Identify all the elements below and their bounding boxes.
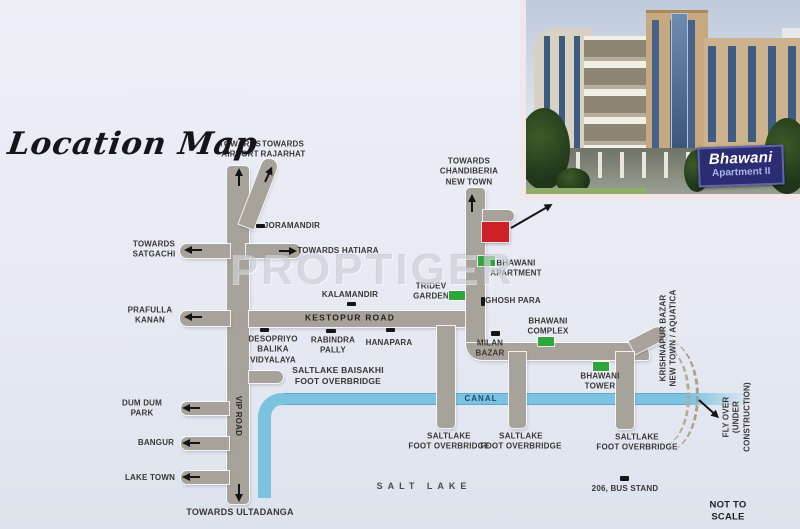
landmark-bhawani-complex bbox=[538, 337, 554, 346]
label-hanapara: HANAPARA bbox=[366, 338, 413, 348]
label-saltlake-overbridge-1: SALTLAKE FOOT OVERBRIDGE bbox=[408, 432, 489, 453]
project-site-marker bbox=[482, 222, 509, 242]
label-vip-road: VIP ROAD bbox=[233, 396, 243, 436]
page-title: Location Map bbox=[5, 126, 260, 162]
label-rabindra-pally: RABINDRA PALLY bbox=[311, 336, 355, 357]
arrow-dumdum-left bbox=[182, 404, 200, 412]
marker-ghosh-para bbox=[481, 297, 485, 306]
arrow-prafulla-left bbox=[184, 313, 202, 321]
label-saltlake-overbridge-2: SALTLAKE FOOT OVERBRIDGE bbox=[480, 432, 561, 453]
label-bhawani-tower: BHAWANI TOWER bbox=[580, 372, 619, 393]
overbridge-road-2 bbox=[509, 352, 526, 428]
label-tridev-garden: TRIDEV GARDEN bbox=[413, 282, 449, 303]
label-bus-stand: 206, BUS STAND bbox=[592, 484, 659, 494]
arrow-hatiara-right bbox=[279, 247, 297, 255]
arrow-chandiberia-up bbox=[468, 194, 476, 212]
label-prafulla-kanan: PRAFULLA KANAN bbox=[128, 306, 173, 327]
canal-vertical bbox=[258, 424, 271, 498]
marker-joramandir bbox=[256, 224, 265, 228]
location-map-page: Location Map PROPTIGER TOWARDS AIRPORTTO… bbox=[0, 0, 800, 529]
arrow-site-link bbox=[509, 201, 555, 232]
marker-bus-stand bbox=[620, 476, 629, 481]
arrow-airport-up bbox=[235, 168, 243, 186]
label-desopriyo-balika-vidyalaya: DESOPRIYO BALIKA VIDYALAYA bbox=[248, 334, 297, 365]
label-salt-lake: SALT LAKE bbox=[377, 481, 472, 493]
label-saltlake-overbridge-3: SALTLAKE FOOT OVERBRIDGE bbox=[596, 433, 677, 454]
landmark-bhawani-apartment bbox=[478, 256, 495, 266]
landmark-tridev-garden bbox=[449, 291, 465, 300]
overbridge-road-1 bbox=[437, 326, 455, 428]
lawn-strip bbox=[526, 188, 646, 194]
label-kestopur-road: KESTOPUR ROAD bbox=[305, 312, 395, 323]
label-towards-ultadanga: TOWARDS ULTADANGA bbox=[186, 507, 293, 519]
label-canal: CANAL bbox=[465, 394, 498, 404]
landmark-bhawani-tower bbox=[593, 362, 609, 371]
building-photo: Bhawani Apartment II bbox=[520, 0, 800, 200]
label-lake-town: LAKE TOWN bbox=[125, 473, 175, 483]
arrow-ultadanga-down bbox=[235, 484, 243, 502]
label-saltlake-baisakhi: SALTLAKE BAISAKHI FOOT OVERBRIDGE bbox=[292, 365, 384, 387]
label-towards-rajarhat: TOWARDS RAJARHAT bbox=[260, 140, 305, 161]
marker-rabindra bbox=[326, 329, 336, 333]
label-fly-over: FLY OVER (UNDER CONSTRUCTION) bbox=[721, 382, 752, 452]
label-kalamandir: KALAMANDIR bbox=[322, 290, 378, 300]
label-ghosh-para: GHOSH PARA bbox=[485, 296, 541, 306]
marker-milan-bazar bbox=[491, 331, 500, 336]
baisakhi-stub-road bbox=[249, 371, 283, 383]
label-dum-dum-park: DUM DUM PARK bbox=[122, 399, 162, 420]
label-milan-bazar: MILAN BAZAR bbox=[476, 339, 505, 360]
marker-hanapara bbox=[386, 328, 395, 332]
label-towards-hatiara: TOWARDS HATIARA bbox=[297, 246, 378, 256]
label-krishnapur-bazar: KRISHNAPUR BAZAR NEW TOWN / AQUATICA bbox=[659, 290, 680, 387]
label-towards-satgachi: TOWARDS SATGACHI bbox=[133, 240, 176, 261]
marker-kalamandir bbox=[347, 302, 356, 306]
arrow-bangur-left bbox=[182, 439, 200, 447]
project-sign-subtitle: Apartment II bbox=[698, 165, 784, 179]
arrow-laketown-left bbox=[182, 473, 200, 481]
marker-desopriyo bbox=[260, 328, 269, 332]
site-stub-road bbox=[483, 210, 514, 222]
label-bhawani-complex: BHAWANI COMPLEX bbox=[528, 317, 569, 338]
arrow-satgachi-left bbox=[184, 246, 202, 254]
label-joramandir: JORAMANDIR bbox=[264, 221, 320, 231]
label-not-to-scale: NOT TO SCALE bbox=[692, 500, 764, 525]
label-towards-chandiberia: TOWARDS CHANDIBERIA NEW TOWN bbox=[440, 156, 498, 187]
project-sign: Bhawani Apartment II bbox=[697, 145, 784, 188]
label-bhawani-apartment: BHAWANI APARTMENT bbox=[490, 259, 541, 280]
label-bangur: BANGUR bbox=[138, 438, 174, 448]
